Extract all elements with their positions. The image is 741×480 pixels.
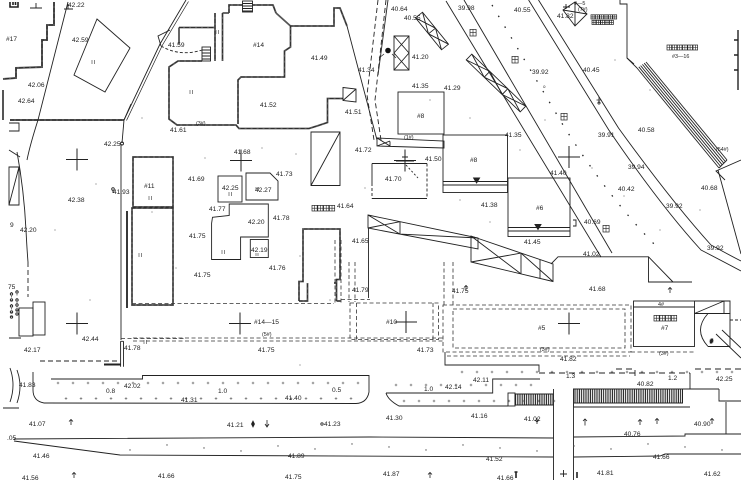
svg-text:42.25: 42.25 (104, 141, 121, 148)
svg-text:41.83: 41.83 (19, 382, 36, 389)
svg-text:41.46: 41.46 (33, 453, 50, 460)
svg-text:#: # (710, 339, 713, 345)
svg-text:41.73: 41.73 (276, 171, 293, 178)
svg-text:1.0: 1.0 (218, 388, 227, 395)
svg-text:41.66: 41.66 (158, 473, 175, 480)
svg-text:41.52: 41.52 (486, 456, 503, 463)
svg-text:42.25: 42.25 (716, 376, 733, 383)
svg-text:41.81: 41.81 (597, 470, 614, 477)
svg-text:40.58: 40.58 (638, 127, 655, 134)
svg-text:41.35: 41.35 (412, 83, 429, 90)
svg-text:41.82: 41.82 (560, 356, 577, 363)
svg-text:41.69: 41.69 (188, 176, 205, 183)
svg-text:41.21: 41.21 (227, 422, 244, 429)
svg-text:42.59: 42.59 (72, 37, 89, 44)
svg-text:#14: #14 (253, 42, 264, 49)
svg-text:41.56: 41.56 (22, 475, 39, 480)
svg-text:39.92: 39.92 (666, 203, 683, 210)
svg-text:41.65: 41.65 (352, 238, 369, 245)
svg-text:#7: #7 (661, 325, 669, 332)
svg-text:(5#): (5#) (262, 332, 272, 338)
svg-text:#17: #17 (6, 36, 17, 43)
svg-text:41.51: 41.51 (345, 109, 362, 116)
svg-text:41.38: 41.38 (481, 202, 498, 209)
svg-text:41.79: 41.79 (352, 287, 369, 294)
svg-text:41.82: 41.82 (557, 13, 574, 20)
svg-text:.05: .05 (7, 435, 16, 442)
svg-text:42.20: 42.20 (248, 219, 265, 226)
svg-text:40.76: 40.76 (624, 431, 641, 438)
svg-text:41.52: 41.52 (260, 102, 277, 109)
svg-text:41.62: 41.62 (704, 471, 721, 478)
svg-text:41.75: 41.75 (189, 233, 206, 240)
svg-text:41.16: 41.16 (471, 413, 488, 420)
svg-text:(1#): (1#) (404, 135, 414, 141)
svg-text:39.91: 39.91 (598, 132, 615, 139)
svg-text:41.78: 41.78 (273, 215, 290, 222)
svg-text:(3#): (3#) (196, 121, 206, 127)
svg-text:41.61: 41.61 (170, 127, 187, 134)
svg-text:41.40: 41.40 (285, 395, 302, 402)
svg-text:41.34: 41.34 (358, 67, 375, 74)
svg-text:41.75: 41.75 (258, 347, 275, 354)
svg-text:41.75: 41.75 (285, 474, 302, 480)
svg-text:4#: 4# (658, 302, 664, 308)
svg-text:41.68: 41.68 (589, 286, 606, 293)
svg-text:0.5: 0.5 (332, 387, 341, 394)
svg-text:41.35: 41.35 (505, 132, 522, 139)
svg-text:41.40: 41.40 (550, 170, 567, 177)
svg-text:41.49: 41.49 (311, 55, 328, 62)
svg-text:41.93: 41.93 (113, 189, 130, 196)
svg-text:42.20: 42.20 (20, 227, 37, 234)
svg-text:42.11: 42.11 (473, 377, 489, 384)
svg-text:40.68: 40.68 (701, 185, 718, 192)
svg-text:42.38: 42.38 (68, 197, 85, 204)
svg-text:39.98: 39.98 (458, 5, 475, 12)
svg-text:41.73: 41.73 (417, 347, 434, 354)
svg-text:41.72: 41.72 (355, 147, 372, 154)
svg-text:42.64: 42.64 (18, 98, 35, 105)
svg-text:40.42: 40.42 (618, 186, 635, 193)
svg-text:#5: #5 (538, 325, 546, 332)
svg-text:41.20: 41.20 (412, 54, 429, 61)
svg-text:41.02: 41.02 (583, 251, 600, 258)
svg-text:#3—16: #3—16 (672, 54, 689, 60)
svg-text:(3#): (3#) (659, 351, 669, 357)
svg-text:41.64: 41.64 (337, 203, 354, 210)
svg-text:(3#): (3#) (540, 347, 550, 353)
svg-text:#6: #6 (536, 205, 544, 212)
svg-text:40.82: 40.82 (637, 381, 654, 388)
svg-text:#11: #11 (144, 183, 155, 190)
svg-text:41.59: 41.59 (168, 42, 185, 49)
svg-text:41.87: 41.87 (383, 471, 400, 478)
svg-text:1.3: 1.3 (566, 373, 575, 380)
svg-text:41.31: 41.31 (181, 397, 198, 404)
svg-text:75: 75 (8, 284, 16, 291)
svg-text:41.70: 41.70 (385, 176, 402, 183)
svg-text:40.55: 40.55 (514, 7, 531, 14)
svg-text:41.29: 41.29 (444, 85, 461, 92)
svg-text:40.55: 40.55 (404, 15, 421, 22)
svg-text:41.02: 41.02 (524, 416, 541, 423)
svg-text:#8: #8 (417, 113, 425, 120)
svg-text:1.0: 1.0 (424, 386, 433, 393)
svg-text:41.89: 41.89 (288, 453, 305, 460)
svg-text:41.75: 41.75 (452, 288, 469, 295)
svg-text:1.2: 1.2 (668, 375, 677, 382)
svg-text:39.94: 39.94 (628, 164, 645, 171)
svg-text:39.92: 39.92 (532, 69, 549, 76)
svg-text:42.02: 42.02 (124, 383, 141, 390)
svg-text:9: 9 (10, 222, 14, 229)
svg-text:41.75: 41.75 (194, 272, 211, 279)
svg-text:42.14: 42.14 (445, 384, 462, 391)
svg-text:42.44: 42.44 (82, 336, 99, 343)
svg-text:41.77: 41.77 (209, 206, 226, 213)
svg-text:#14—15: #14—15 (254, 319, 279, 326)
svg-text:#10: #10 (386, 319, 397, 326)
svg-text:39.92: 39.92 (707, 245, 724, 252)
svg-text:41.30: 41.30 (386, 415, 403, 422)
svg-text:42.25: 42.25 (222, 185, 239, 192)
svg-text:40.64: 40.64 (391, 6, 408, 13)
svg-text:41.68: 41.68 (234, 149, 251, 156)
svg-text:0.8: 0.8 (106, 388, 115, 395)
svg-text:41.66: 41.66 (497, 475, 514, 480)
svg-text:41.76: 41.76 (269, 265, 286, 272)
svg-text:41.50: 41.50 (425, 156, 442, 163)
svg-text:#8: #8 (470, 157, 478, 164)
svg-text:42.17: 42.17 (24, 347, 41, 354)
svg-text:40.45: 40.45 (583, 67, 600, 74)
svg-text:41.66: 41.66 (653, 454, 670, 461)
svg-text:(54#): (54#) (716, 147, 729, 153)
svg-text:40.90: 40.90 (694, 421, 711, 428)
svg-text:42.19: 42.19 (251, 247, 268, 254)
svg-text:(7#): (7#) (578, 7, 588, 13)
svg-text:41.07: 41.07 (29, 421, 46, 428)
svg-text:42.06: 42.06 (28, 82, 45, 89)
svg-text:41.45: 41.45 (524, 239, 541, 246)
svg-text:41.23: 41.23 (324, 421, 341, 428)
svg-text:41.78: 41.78 (124, 345, 141, 352)
svg-text:40.69: 40.69 (584, 219, 601, 226)
svg-text:42.27: 42.27 (255, 187, 272, 194)
svg-text:42.22: 42.22 (68, 2, 85, 9)
